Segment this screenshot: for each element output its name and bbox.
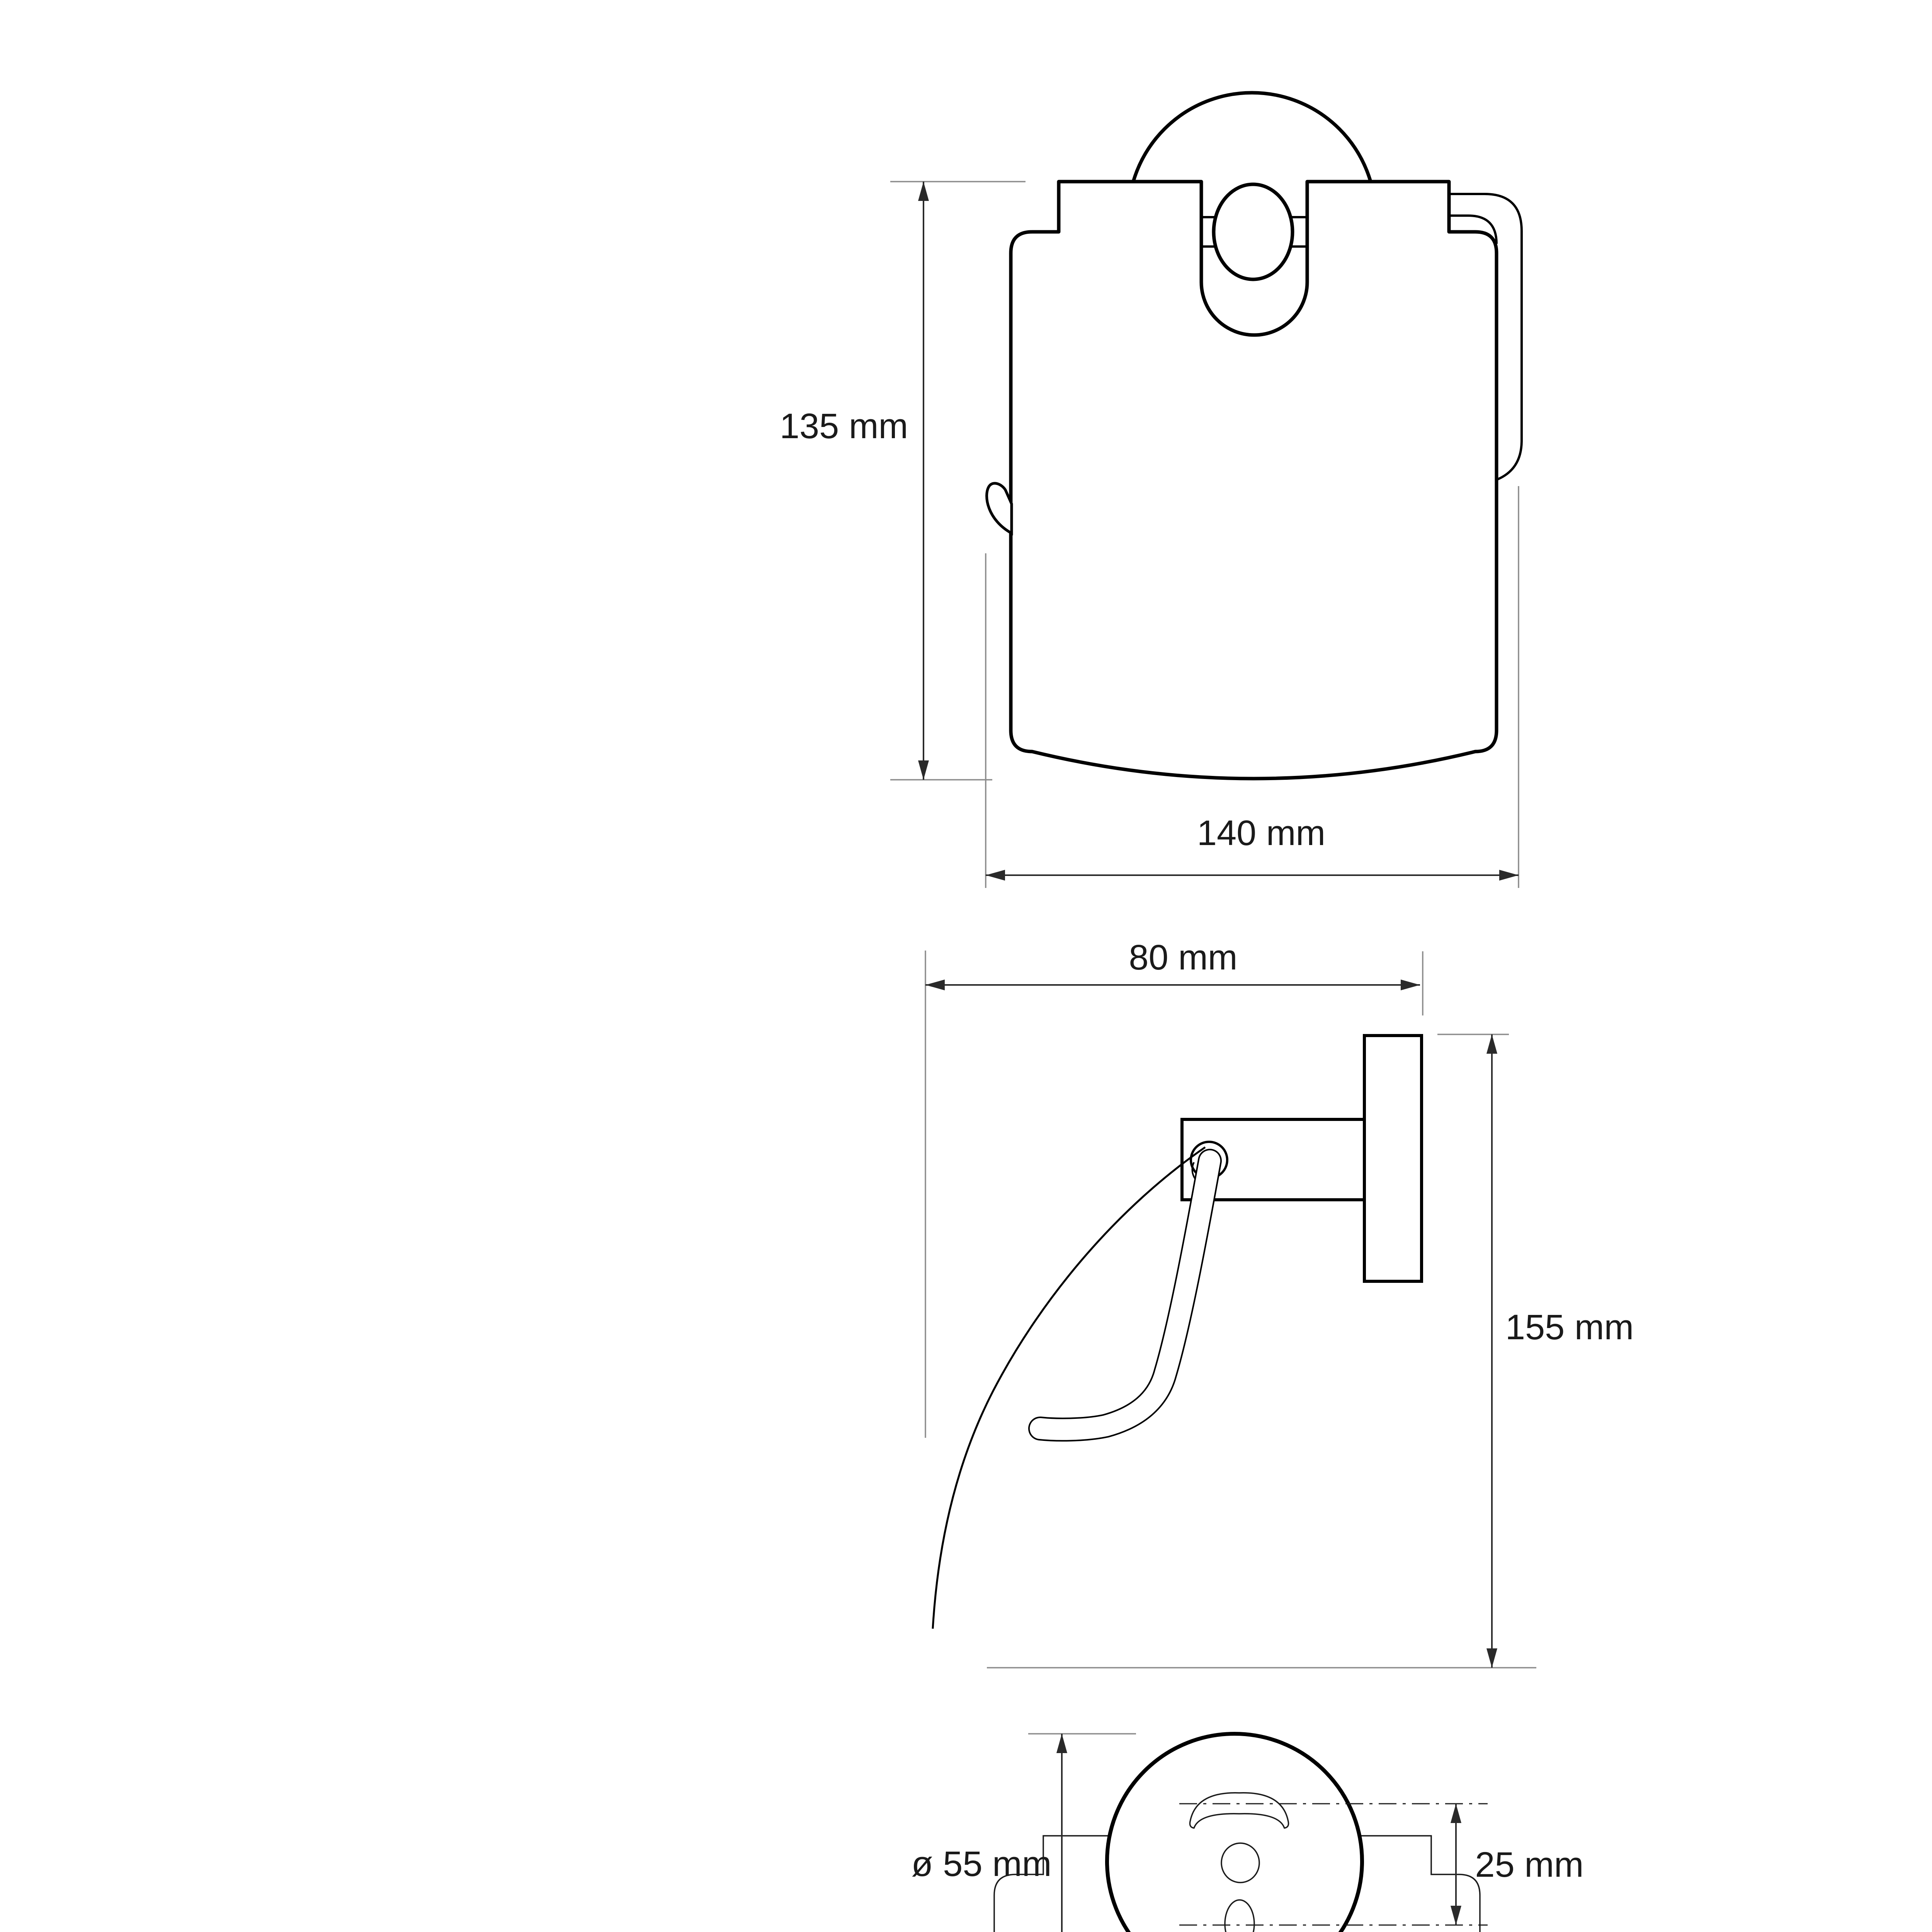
arrowhead-right xyxy=(1401,980,1420,990)
arrowhead-up xyxy=(1451,1804,1461,1823)
front-view: 135 mm 140 mm xyxy=(780,93,1522,888)
arrowhead-up xyxy=(1056,1734,1067,1753)
arrowhead-down xyxy=(918,760,929,780)
arrowhead-left xyxy=(925,980,945,990)
dimension-label-diameter-55: ø 55 mm xyxy=(912,1844,1052,1884)
dimension-label-25: 25 mm xyxy=(1475,1845,1583,1884)
top-cover-step-right xyxy=(1359,1836,1480,1932)
arrowhead-left xyxy=(986,870,1005,881)
arrowhead-up xyxy=(1486,1034,1497,1054)
arrowhead-right xyxy=(1499,870,1519,881)
side-view: 80 mm 155 mm xyxy=(925,938,1634,1668)
front-holder-arm-left-tip xyxy=(987,483,1012,533)
technical-drawing: 135 mm 140 mm 80 mm xyxy=(0,0,1932,1932)
dimension-label-80: 80 mm xyxy=(1129,938,1237,977)
top-view: ø 55 mm 25 mm xyxy=(912,1734,1584,1932)
arrowhead-down xyxy=(1486,1648,1497,1668)
top-hole-spacing-dimension: 25 mm xyxy=(1451,1804,1584,1925)
front-height-dimension: 135 mm xyxy=(780,182,1026,780)
arrowhead-up xyxy=(918,182,929,201)
drawing-sheet: 135 mm 140 mm 80 mm xyxy=(0,0,1932,1932)
top-plate-diameter-dimension: ø 55 mm xyxy=(912,1734,1136,1932)
dimension-label-135: 135 mm xyxy=(780,406,908,446)
top-screw-hole-middle xyxy=(1221,1843,1259,1883)
arrowhead-down xyxy=(1451,1906,1461,1925)
front-hinge-knob xyxy=(1214,184,1293,279)
dimension-label-140: 140 mm xyxy=(1197,813,1325,853)
dimension-label-155: 155 mm xyxy=(1505,1308,1634,1347)
side-wall-plate xyxy=(1364,1036,1422,1281)
